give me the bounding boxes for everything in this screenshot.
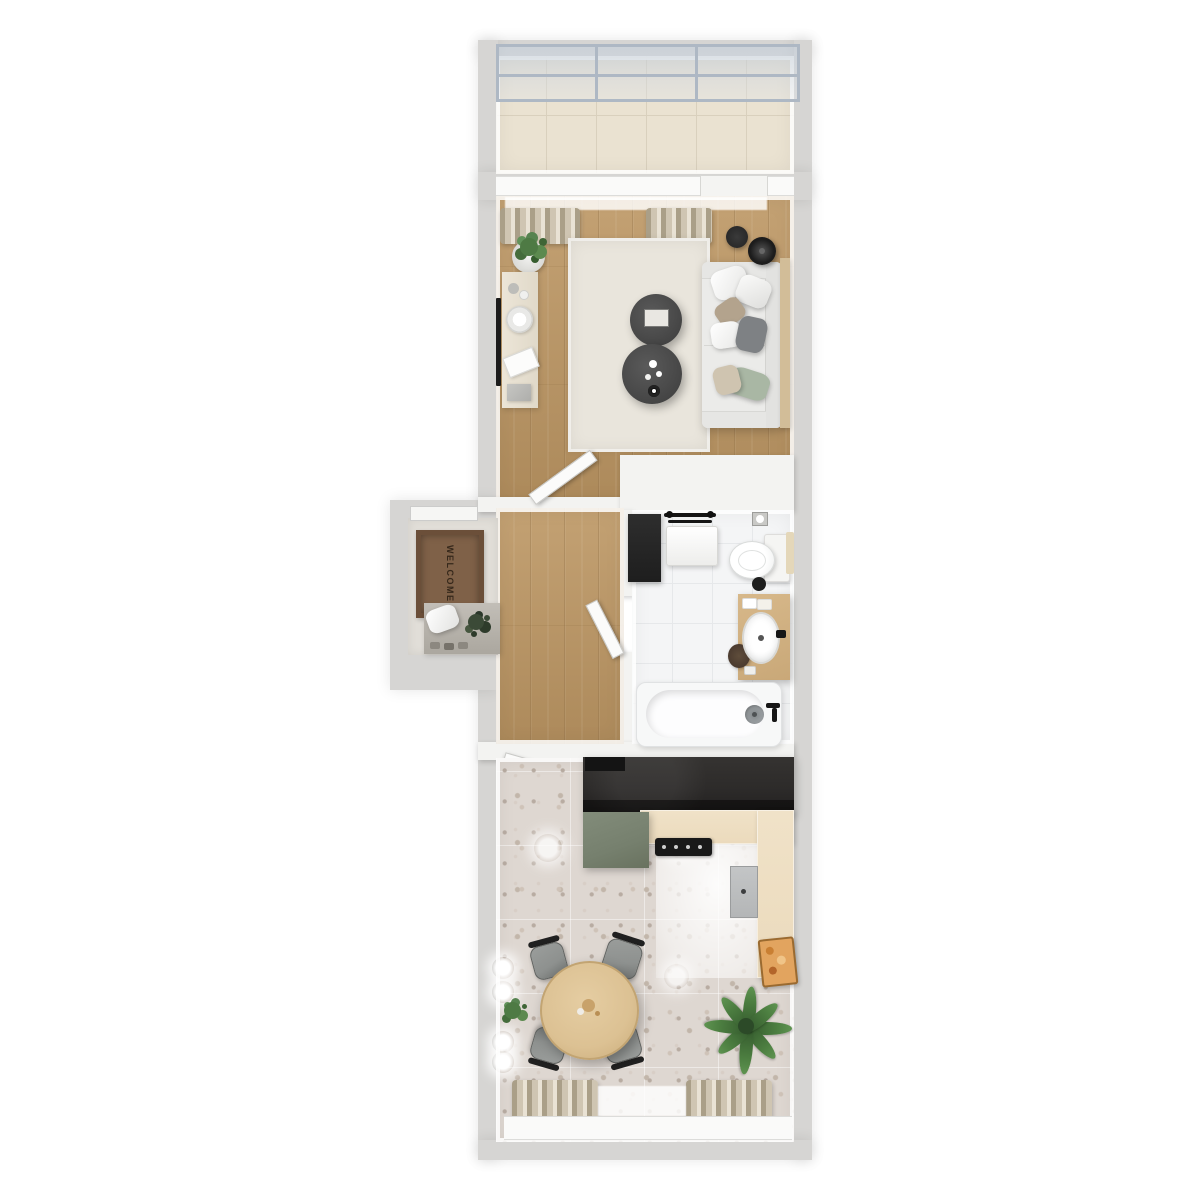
bath-sink	[742, 612, 780, 664]
toilet-paper-holder	[752, 512, 768, 526]
kitchen-plant-small	[504, 1002, 521, 1019]
candle-dark	[648, 385, 660, 397]
plant-center	[738, 1018, 754, 1034]
light-reflection	[534, 834, 562, 862]
coffee-table-tray	[644, 309, 669, 327]
balcony-door	[700, 175, 768, 198]
floor-lamp	[748, 237, 776, 265]
rail-knob	[707, 511, 714, 518]
candle	[649, 360, 657, 368]
wall-right	[794, 40, 812, 1160]
balcony-glass-roof	[496, 44, 800, 102]
candle	[656, 371, 662, 377]
bathtub-drain	[745, 705, 764, 724]
wall-light	[492, 1031, 514, 1053]
kitchen-island-sage	[583, 812, 649, 868]
kitchen-window-sill	[504, 1116, 792, 1140]
wall-light	[492, 957, 514, 979]
living-plant-foliage	[520, 238, 538, 256]
kitchen-plant-large	[694, 978, 794, 1078]
welcome-mat-text: WELCOME	[445, 545, 455, 603]
washing-machine	[666, 526, 718, 566]
dining-table	[540, 961, 639, 1060]
wall-left-upper	[478, 40, 498, 518]
vanity-towel	[757, 599, 772, 610]
shoes	[430, 642, 440, 649]
rail-knob	[666, 511, 673, 518]
glass-roof-rail	[499, 74, 797, 77]
kitchen-curtain-left	[512, 1080, 598, 1120]
cooktop	[655, 838, 712, 856]
floor-plan-canvas: WELCOME	[0, 0, 1200, 1200]
toilet-flush-button	[752, 577, 766, 591]
console-box	[507, 384, 531, 401]
sink-faucet	[776, 630, 786, 638]
candle	[645, 374, 651, 380]
entry-door	[410, 506, 478, 521]
coffee-table-small	[630, 294, 682, 346]
closet-block	[620, 455, 794, 511]
glass-roof-mullion	[695, 47, 698, 99]
wall-bottom	[478, 1140, 812, 1160]
wall-left-lower	[478, 655, 498, 1160]
glass-roof-mullion	[595, 47, 598, 99]
living-rug	[568, 238, 710, 452]
sink-drain	[758, 635, 764, 641]
vanity-soap	[744, 666, 756, 675]
side-table-black	[726, 226, 748, 248]
bathtub-faucet-handle	[772, 708, 777, 722]
kitchen-sheer-curtain	[598, 1086, 686, 1116]
bathtub	[636, 682, 782, 747]
kitchen-curtain-right	[686, 1080, 772, 1120]
tv-screen	[496, 298, 501, 386]
built-in-appliance	[730, 866, 758, 918]
wall-light	[492, 981, 514, 1003]
table-decor	[582, 999, 595, 1012]
sofa-armrest-bottom	[702, 411, 766, 428]
console-speaker	[506, 306, 533, 333]
console-vase	[519, 290, 529, 300]
kitchen-counter-notch	[585, 757, 625, 771]
toilet-bowl	[729, 541, 775, 579]
shoes	[458, 642, 468, 649]
bath-dark-panel	[628, 514, 661, 582]
shoes	[444, 643, 454, 650]
vanity-towel	[742, 598, 757, 609]
bath-wall-towels	[786, 532, 794, 574]
coffee-table-large	[622, 344, 682, 404]
console-vase	[508, 283, 519, 294]
sofa-back-shelf	[780, 258, 790, 428]
wall-light	[492, 1051, 514, 1073]
bench-plant	[468, 614, 484, 630]
towel-rail	[668, 520, 712, 523]
